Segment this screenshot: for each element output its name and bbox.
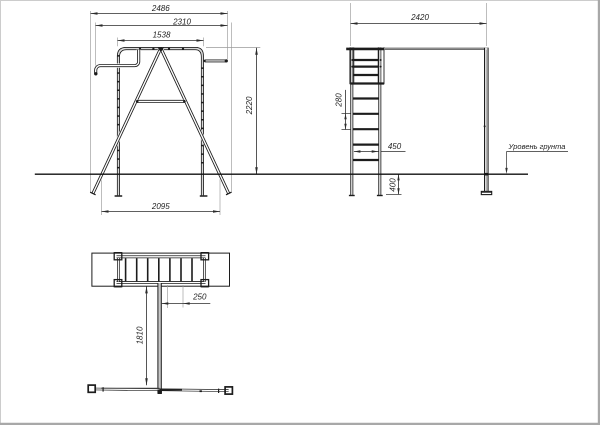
- svg-text:2095: 2095: [151, 202, 170, 211]
- svg-text:450: 450: [388, 142, 402, 151]
- svg-text:400: 400: [388, 178, 397, 192]
- svg-text:2420: 2420: [410, 13, 429, 22]
- svg-text:1538: 1538: [153, 31, 171, 40]
- svg-text:250: 250: [192, 293, 207, 302]
- svg-text:2220: 2220: [245, 96, 254, 115]
- svg-text:Уровень грунта: Уровень грунта: [508, 142, 566, 151]
- svg-text:280: 280: [335, 93, 344, 108]
- svg-text:1810: 1810: [136, 326, 145, 344]
- svg-text:2310: 2310: [172, 17, 191, 26]
- svg-text:2486: 2486: [151, 4, 170, 13]
